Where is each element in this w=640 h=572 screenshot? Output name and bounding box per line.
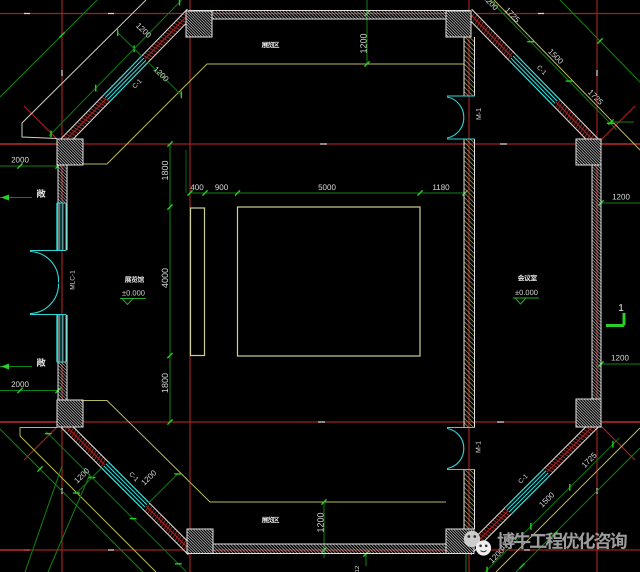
svg-text:MLC-1: MLC-1 [70, 270, 77, 290]
svg-text:2000: 2000 [11, 156, 29, 165]
svg-text:5000: 5000 [318, 183, 336, 192]
svg-text:±0.000: ±0.000 [122, 289, 145, 298]
svg-text:1180: 1180 [432, 183, 450, 192]
svg-text:M-1: M-1 [476, 441, 483, 453]
svg-text:±0.000: ±0.000 [515, 288, 538, 297]
svg-text:4000: 4000 [160, 268, 170, 288]
svg-text:M-1: M-1 [476, 108, 483, 120]
svg-text:12: 12 [354, 565, 361, 572]
svg-text:1800: 1800 [160, 373, 170, 393]
svg-text:1200: 1200 [359, 33, 369, 53]
svg-text:1800: 1800 [160, 160, 170, 180]
svg-text:1200: 1200 [612, 193, 630, 202]
svg-text:2000: 2000 [11, 380, 29, 389]
svg-text:1200: 1200 [316, 512, 326, 532]
svg-text:900: 900 [215, 183, 229, 192]
svg-text:1200: 1200 [611, 354, 629, 363]
svg-text:400: 400 [190, 183, 204, 192]
svg-text:1: 1 [618, 303, 624, 314]
